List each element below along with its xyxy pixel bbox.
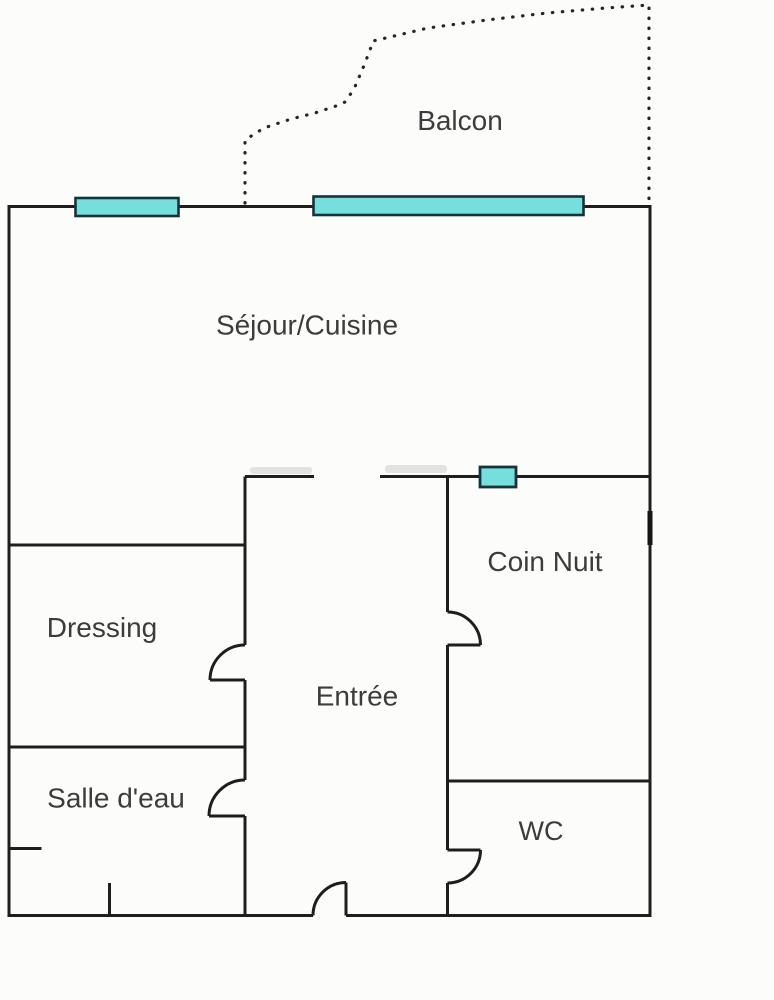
svg-text:Salle d'eau: Salle d'eau <box>47 783 185 814</box>
svg-text:Dressing: Dressing <box>47 612 157 643</box>
svg-text:Séjour/Cuisine: Séjour/Cuisine <box>216 310 398 341</box>
svg-text:WC: WC <box>519 816 564 846</box>
svg-text:Entrée: Entrée <box>316 681 399 712</box>
svg-text:Coin Nuit: Coin Nuit <box>487 546 602 577</box>
svg-text:Balcon: Balcon <box>417 105 503 136</box>
